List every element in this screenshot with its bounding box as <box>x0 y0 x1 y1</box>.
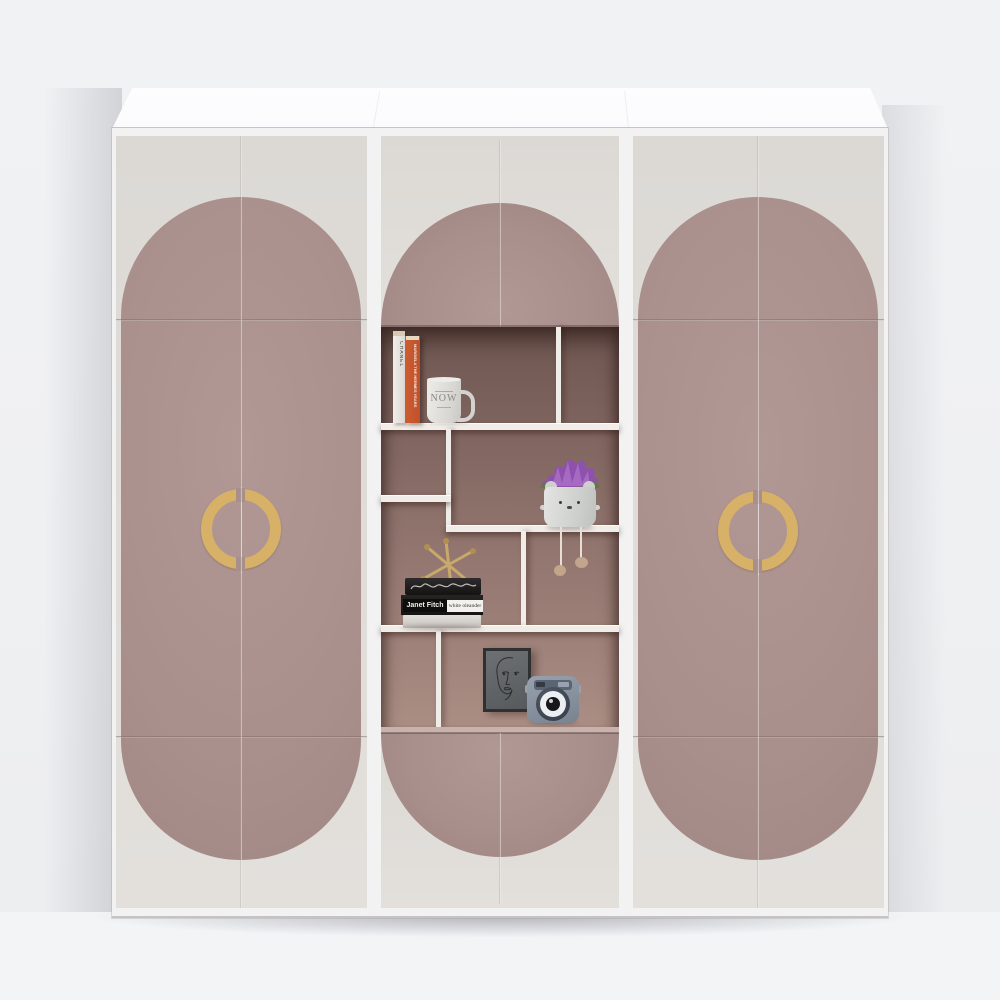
stack-top-book <box>405 578 481 595</box>
mug-subtext-line2 <box>437 407 451 408</box>
stack-shadow <box>401 626 483 630</box>
bear-leg-left <box>560 527 562 569</box>
camera-lens-pupil <box>546 697 560 711</box>
book-orange: MARGIELA THE HERMES YEARS <box>405 336 420 423</box>
camera-body <box>527 676 579 723</box>
book-orange-pages <box>406 336 419 340</box>
bear-planter <box>538 455 602 580</box>
book-orange-spine-text: MARGIELA THE HERMES YEARS <box>409 344 417 416</box>
script-decor <box>405 578 481 595</box>
book-white: CHANEL <box>393 331 405 423</box>
stack-middle-book: Janet Fitch white oleander <box>401 595 483 615</box>
book-white-spine-text: CHANEL <box>396 341 403 411</box>
scene: CHANEL MARGIELA THE HERMES YEARS NOW <box>0 0 1000 1000</box>
line-art-face <box>486 651 528 707</box>
mug-rim <box>427 377 461 382</box>
bear-nose <box>567 506 572 509</box>
camera-viewfinder <box>536 682 545 687</box>
bear-eye-left <box>559 501 562 504</box>
stack-title-label: white oleander <box>447 600 483 612</box>
bear-pot <box>544 487 596 527</box>
stack-author-text: Janet Fitch <box>407 602 444 609</box>
bear-paw-right <box>575 557 588 568</box>
stack-author-label: Janet Fitch <box>403 599 447 612</box>
book-stack: Janet Fitch white oleander <box>399 538 487 630</box>
camera-flash <box>558 682 569 687</box>
portrait-frame <box>483 648 531 712</box>
bear-paw-left <box>554 565 566 576</box>
camera-lens-glint <box>549 699 553 703</box>
stack-title-text: white oleander <box>449 603 482 609</box>
mug-text: NOW <box>427 393 461 404</box>
bear-eye-right <box>577 501 580 504</box>
book-white-pages <box>393 331 405 336</box>
shelf-objects: CHANEL MARGIELA THE HERMES YEARS NOW <box>0 0 1000 1000</box>
bear-leg-right <box>580 527 582 561</box>
mug: NOW <box>427 376 473 424</box>
mug-subtext-line <box>435 391 453 392</box>
instant-camera <box>527 676 579 723</box>
